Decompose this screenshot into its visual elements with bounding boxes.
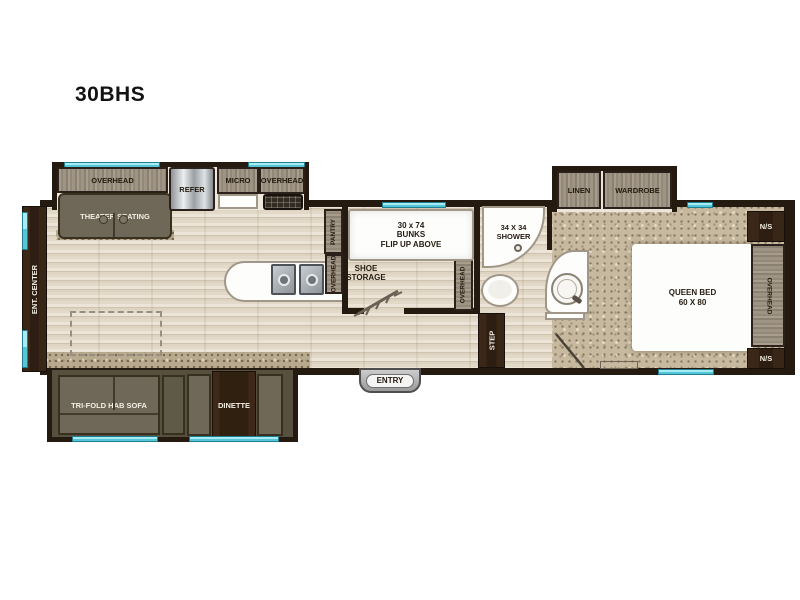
drain-icon — [278, 274, 290, 286]
front-window-top — [22, 212, 28, 250]
theater-seating: THEATER SEATING — [58, 193, 172, 239]
right-wall — [784, 200, 795, 375]
living-slideout-left-wall — [47, 368, 52, 442]
sink-basin-left-icon — [271, 264, 296, 295]
entry-step-inner: ENTRY — [366, 374, 414, 388]
page-title: 30BHS — [75, 83, 145, 107]
overhead-cabinet-theater: OVERHEAD — [57, 167, 168, 193]
refrigerator: REFER — [169, 167, 215, 211]
slide-divider-panel — [162, 375, 185, 435]
shoe-storage: SHOE STORAGE — [340, 263, 392, 283]
bedroom-door-icon — [550, 328, 592, 372]
nightstand-bottom: N/S — [747, 348, 785, 369]
bunk-flip-label: FLIP UP ABOVE — [381, 240, 442, 250]
toilet-bowl — [488, 280, 512, 299]
entry-label: ENTRY — [377, 376, 404, 386]
bedroom-bottom-window — [658, 369, 714, 375]
theater-seat-divider — [113, 213, 115, 237]
shower-size-label: 34 X 34 — [497, 223, 531, 232]
dinette-label: DINETTE — [218, 401, 250, 410]
sink-basin-right-icon — [299, 264, 324, 295]
bunk-label: BUNKS — [381, 230, 442, 240]
nightstand-top: N/S — [747, 211, 785, 242]
shower-label: SHOWER — [497, 232, 531, 241]
wardrobe-label: WARDROBE — [615, 186, 660, 195]
step-label: STEP — [487, 331, 496, 351]
micro-label: MICRO — [226, 176, 251, 185]
bedroom-step-outline — [600, 361, 638, 369]
refer-label: REFER — [179, 185, 204, 194]
living-slideout-window-right — [189, 436, 279, 442]
trifold-sofa: TRI-FOLD HAB SOFA — [58, 375, 160, 435]
dinette-bench-left — [187, 374, 211, 436]
queen-bed-size-label: 60 X 80 — [669, 298, 717, 308]
wardrobe-cabinet: WARDROBE — [603, 171, 672, 209]
shower-drain-icon — [514, 244, 522, 252]
overhead-kitchen-label: OVERHEAD — [261, 176, 304, 185]
pantry-cabinet: PANTRY — [324, 209, 343, 254]
overhead-pantry-label: OVERHEAD — [330, 256, 338, 293]
bunk-bed: 30 x 74 BUNKS FLIP UP ABOVE — [348, 209, 474, 261]
sofa-label: TRI-FOLD HAB SOFA — [71, 401, 147, 410]
queen-bed: QUEEN BED 60 X 80 — [632, 244, 753, 351]
front-window-bottom — [22, 330, 28, 368]
vanity-ledge — [545, 312, 585, 320]
optional-table-outline — [70, 311, 162, 356]
drain-icon — [306, 274, 318, 286]
overhead-cabinet-bedroom: OVERHEAD — [751, 244, 785, 347]
living-slideout-window-left — [72, 436, 158, 442]
cupholder-icon — [99, 215, 108, 224]
overhead-cabinet-kitchen: OVERHEAD — [259, 167, 305, 194]
cooktop-icon — [263, 194, 303, 210]
overhead-bedroom-label: OVERHEAD — [764, 277, 772, 314]
living-slideout-right-wall — [293, 368, 298, 442]
bunk-ladder-icon — [352, 284, 404, 320]
step-riser: STEP — [478, 313, 505, 368]
dinette-table: DINETTE — [212, 371, 256, 439]
queen-bed-label: QUEEN BED — [669, 288, 717, 298]
toilet-icon — [481, 274, 519, 307]
shoe-storage-label2: STORAGE — [346, 273, 385, 283]
overhead-cabinet-bunkroom: OVERHEAD — [454, 259, 473, 311]
ns-bottom-label: N/S — [760, 354, 773, 363]
bedroom-slideout-right-wall — [672, 166, 677, 212]
dinette-bench-right — [257, 374, 283, 436]
linen-cabinet: LINEN — [557, 171, 601, 209]
cupholder-icon — [119, 215, 128, 224]
overhead-theater-label: OVERHEAD — [91, 176, 134, 185]
kitchen-counter-top — [218, 194, 258, 209]
shoe-storage-label1: SHOE — [346, 264, 385, 274]
floorplan-canvas: 30BHS OVERHEAD THEATER SEATING REFER MIC… — [0, 0, 800, 600]
microwave-cabinet: MICRO — [217, 167, 259, 194]
bunk-window — [382, 202, 446, 208]
bedroom-top-window — [687, 202, 713, 208]
bathroom-left-wall — [474, 204, 480, 314]
sofa-cushion-divider — [113, 377, 115, 410]
pantry-label: PANTRY — [330, 219, 338, 245]
bunk-size-label: 30 x 74 — [381, 221, 442, 231]
ent-center-label: ENT. CENTER — [30, 264, 39, 313]
overhead-bunk-label: OVERHEAD — [460, 267, 468, 304]
sofa-front-edge — [60, 413, 158, 415]
ns-top-label: N/S — [760, 222, 773, 231]
linen-label: LINEN — [568, 186, 591, 195]
